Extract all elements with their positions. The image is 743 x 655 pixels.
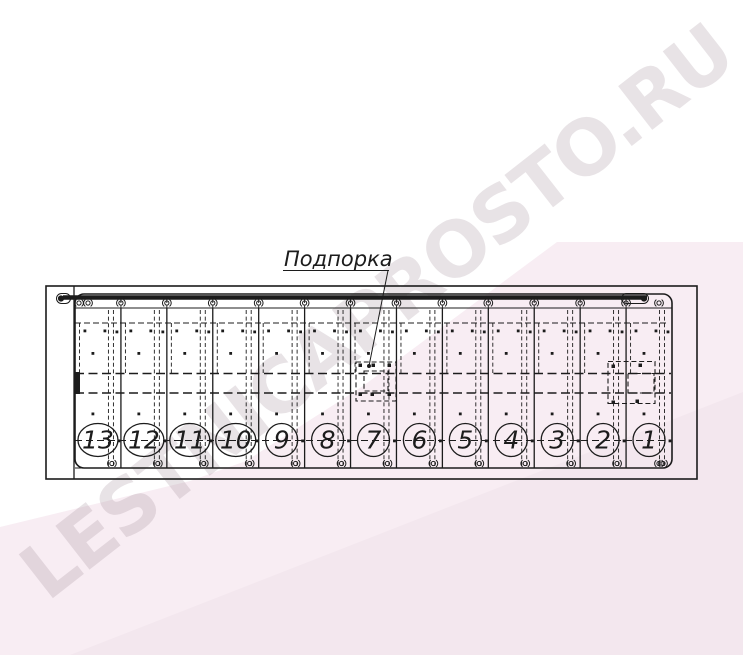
fastener-icon [84, 300, 93, 307]
step-number: 3 [549, 426, 565, 455]
step-number: 11 [174, 426, 206, 455]
fastener-icon [154, 460, 163, 467]
beam-end [75, 373, 80, 394]
step-number: 6 [411, 426, 427, 455]
fastener-icon [567, 460, 576, 467]
step-column: 5 [447, 299, 493, 468]
fastener-icon [245, 460, 254, 467]
step-number: 8 [320, 426, 336, 455]
support-detail-right [608, 362, 655, 404]
callout: Подпорка [283, 247, 393, 368]
fastener-icon [521, 460, 530, 467]
step-number: 4 [503, 426, 519, 455]
fastener-icon [429, 460, 438, 467]
fastener-icon [655, 300, 664, 307]
step-number: 9 [274, 426, 290, 455]
steps-layer: 13121110987654321 [78, 299, 671, 468]
fastener-icon [108, 460, 117, 467]
page-background: LESTNICAPROSTO.RU [0, 0, 743, 655]
step-column: 10 [216, 299, 263, 468]
step-column: 9 [263, 299, 309, 468]
staircase-drawing: 13121110987654321 Подпорка [0, 0, 743, 655]
step-column: 11 [170, 299, 217, 468]
callout-label: Подпорка [284, 247, 393, 271]
step-column: 7 [355, 299, 401, 468]
fastener-icon [75, 300, 84, 307]
fastener-icon [291, 460, 300, 467]
step-column: 12 [124, 299, 171, 468]
step-column: 13 [78, 299, 125, 468]
callout-leader-dot [368, 365, 371, 368]
fastener-icon [199, 460, 208, 467]
step-number: 10 [220, 426, 252, 455]
step-number: 12 [128, 426, 160, 455]
step-number: 13 [82, 426, 114, 455]
step-column: 3 [539, 299, 585, 468]
step-number: 1 [641, 426, 657, 455]
step-column: 6 [401, 299, 447, 468]
step-number: 7 [366, 426, 382, 455]
support-detail-center [356, 362, 396, 401]
step-number: 2 [595, 426, 611, 455]
step-column: 8 [309, 299, 355, 468]
callout-leader-line [369, 271, 388, 367]
step-column: 1 [631, 310, 671, 467]
fastener-icon [383, 460, 392, 467]
step-column: 4 [493, 299, 539, 468]
fastener-icon [337, 460, 346, 467]
fastener-icon [613, 460, 622, 467]
fastener-icon [475, 460, 484, 467]
step-number: 5 [457, 426, 473, 455]
